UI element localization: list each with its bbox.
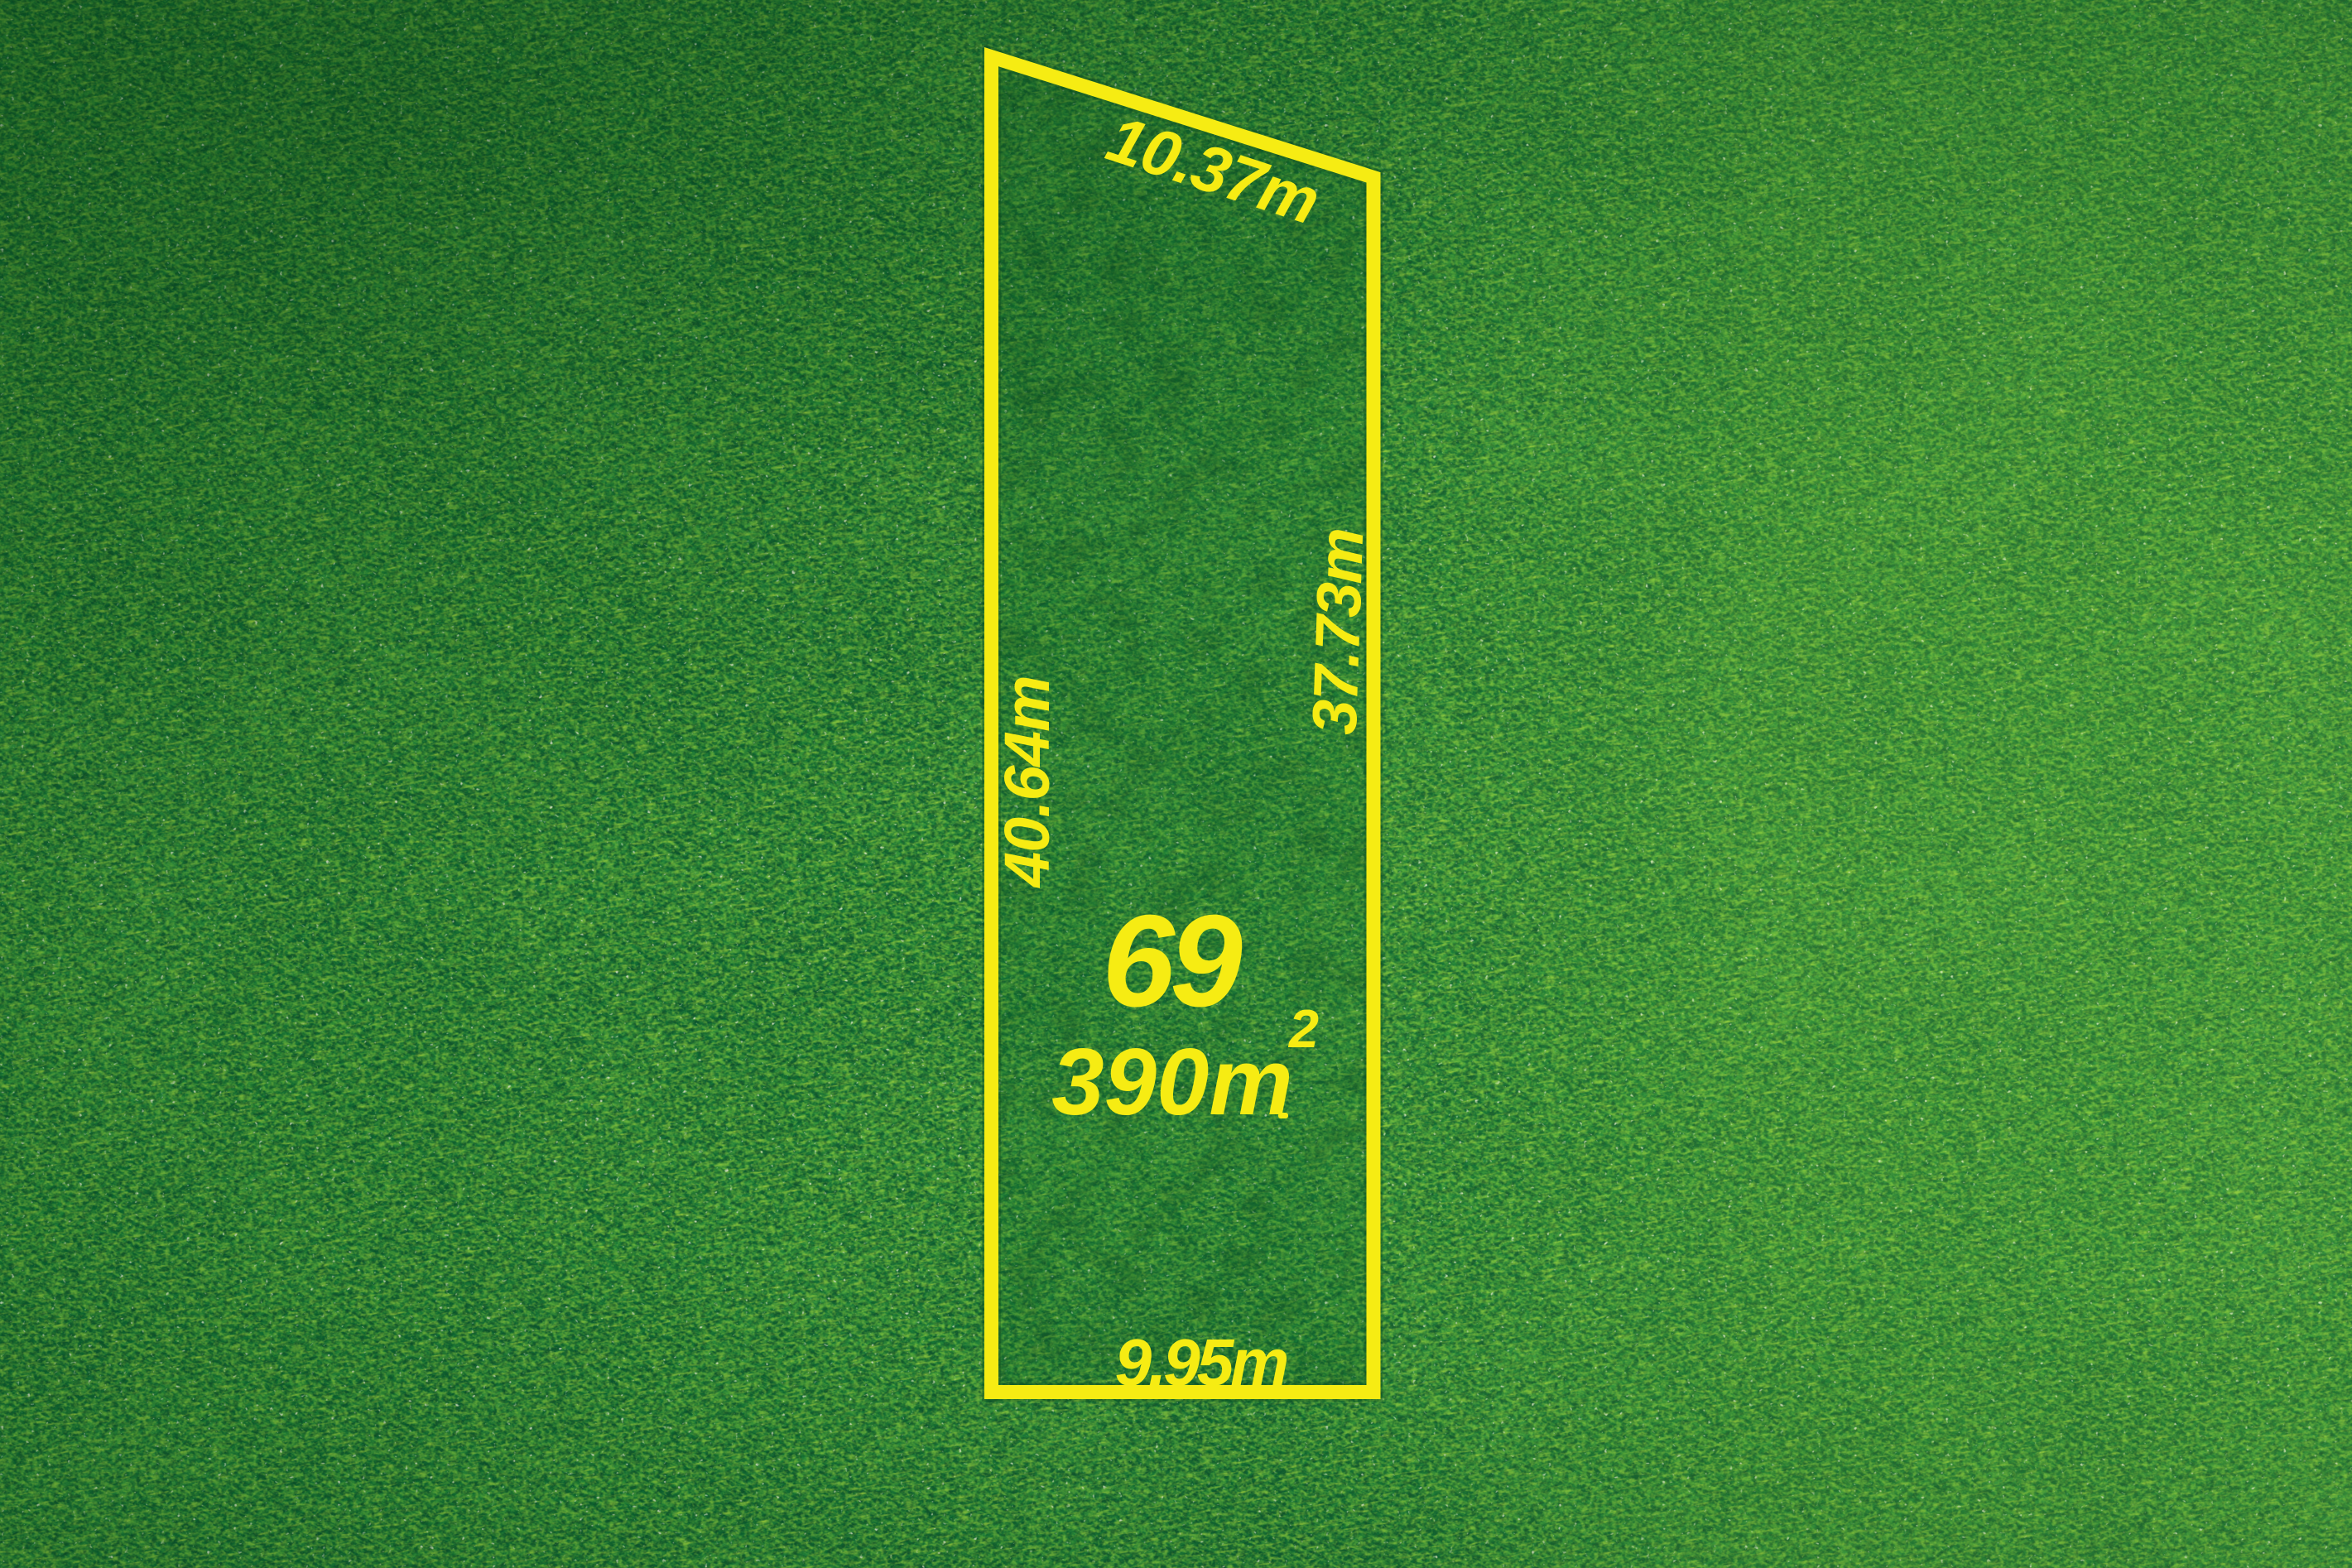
svg-text:69: 69	[1102, 888, 1243, 1034]
svg-text:9.95m: 9.95m	[1115, 1325, 1287, 1399]
svg-text:2: 2	[1287, 998, 1319, 1059]
svg-text:37.73m: 37.73m	[1300, 527, 1378, 736]
svg-text:390m: 390m	[1051, 1030, 1293, 1135]
svg-text:40.64m: 40.64m	[992, 676, 1063, 888]
